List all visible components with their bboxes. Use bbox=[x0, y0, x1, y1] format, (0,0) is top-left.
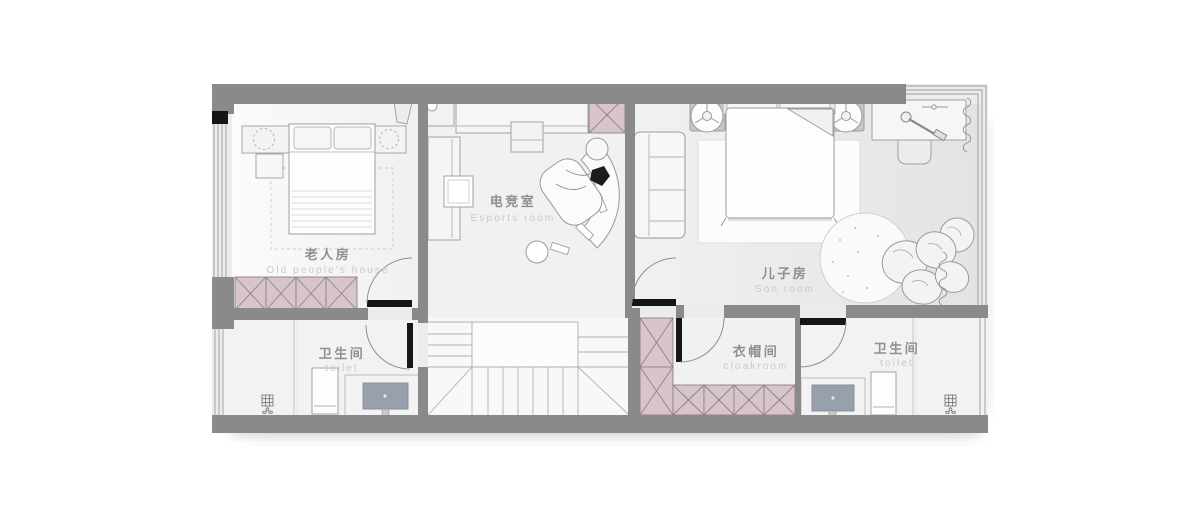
room-label-cloakroom-zh: 衣帽间 bbox=[733, 344, 780, 359]
tall-cabinet bbox=[871, 372, 896, 415]
tall-cabinet bbox=[312, 368, 338, 414]
room-label-old-people-zh: 老人房 bbox=[304, 247, 352, 262]
double-bed bbox=[289, 124, 375, 234]
floor-plan-canvas: 老人房 Old people's house 电竞室 Esports room … bbox=[0, 0, 1200, 517]
vanity bbox=[345, 375, 420, 416]
faucet bbox=[382, 409, 389, 416]
floor-plan: 老人房 Old people's house 电竞室 Esports room … bbox=[0, 0, 1200, 517]
wall-bottom bbox=[212, 415, 988, 433]
wall-old-esports bbox=[418, 104, 428, 323]
vanity bbox=[801, 378, 865, 416]
wall-old-south bbox=[212, 308, 368, 320]
wall-top bbox=[212, 84, 906, 104]
side-table bbox=[256, 154, 283, 178]
room-label-son-en: Son room bbox=[755, 284, 815, 295]
room-label-toilet-left-en: toilet bbox=[325, 363, 359, 374]
sofa bbox=[634, 132, 685, 238]
column-block bbox=[212, 111, 228, 124]
person-head bbox=[586, 138, 608, 160]
nightstand bbox=[373, 126, 406, 153]
small-table bbox=[511, 122, 543, 152]
room-label-esports-en: Esports room bbox=[471, 213, 556, 224]
stair-landing bbox=[472, 322, 578, 367]
room-label-toilet-right-en: toilet bbox=[880, 358, 914, 369]
wall-son-south bbox=[724, 305, 800, 318]
room-label-old-people-en: Old people's house bbox=[266, 265, 389, 276]
nightstand bbox=[242, 126, 292, 153]
lamp-dot bbox=[932, 105, 936, 109]
double-bed bbox=[721, 98, 839, 226]
old-room-wardrobe bbox=[235, 277, 357, 310]
room-label-cloakroom-en: cloakroom bbox=[723, 361, 788, 372]
room-label-toilet-right-zh: 卫生间 bbox=[874, 341, 921, 356]
room-label-son-zh: 儿子房 bbox=[761, 266, 809, 281]
wall-esports-son bbox=[625, 104, 635, 305]
room-label-esports-zh: 电竞室 bbox=[490, 194, 537, 209]
round-nightstand bbox=[691, 100, 723, 132]
wall-stair-cloak bbox=[628, 308, 640, 418]
stool bbox=[526, 241, 548, 263]
room-label-toilet-left-zh: 卫生间 bbox=[319, 346, 366, 361]
